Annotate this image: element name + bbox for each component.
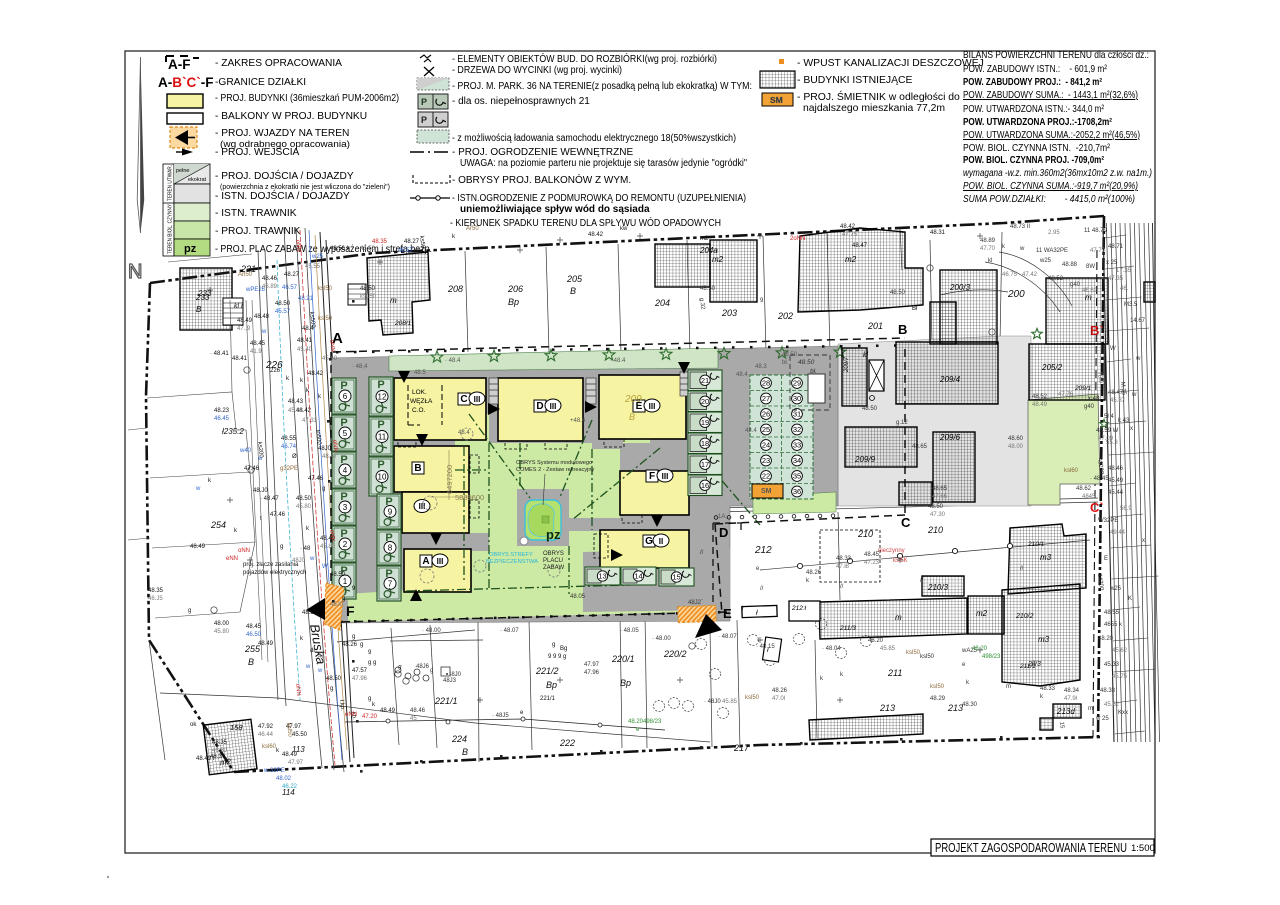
svg-text:G: G	[645, 536, 653, 547]
svg-text:COMES 2 - Zestaw rekreacyjny: COMES 2 - Zestaw rekreacyjny	[516, 467, 595, 473]
svg-text:x 48: x 48	[1088, 396, 1100, 402]
svg-text:W: W	[322, 564, 328, 570]
svg-text:48.49 t: 48.49 t	[196, 756, 215, 762]
svg-text:ksł60: ksł60	[1064, 468, 1079, 474]
svg-text:II: II	[659, 537, 663, 546]
svg-text:m2: m2	[700, 236, 709, 242]
svg-text://: //	[1020, 566, 1024, 572]
svg-text:23: 23	[762, 456, 770, 465]
svg-text:B: B	[462, 747, 468, 757]
svg-text:P: P	[421, 97, 427, 107]
svg-text:221/1: 221/1	[434, 696, 458, 706]
svg-text:48.35: 48.35	[372, 239, 388, 245]
svg-text:48.29: 48.29	[930, 696, 946, 702]
svg-text:nieczynny: nieczynny	[878, 548, 905, 554]
svg-text:8W: 8W	[1086, 264, 1095, 270]
svg-text:5: 5	[343, 429, 348, 438]
svg-text:dr: dr	[310, 648, 315, 654]
svg-text:w25: w25	[1039, 258, 1052, 264]
svg-text:48.33: 48.33	[836, 556, 852, 562]
svg-text:M3.5: M3.5	[1124, 302, 1138, 308]
svg-text:56.9: 56.9	[1120, 506, 1132, 512]
svg-text:PROJEKT ZAGOSPODAROWANIA TERE: PROJEKT ZAGOSPODAROWANIA TERENU	[935, 840, 1127, 855]
svg-text:- KIERUNEK SPADKU TERENU DLA S: - KIERUNEK SPADKU TERENU DLA SPŁYWU WÓD …	[450, 216, 721, 229]
svg-text:ekokrat: ekokrat	[188, 177, 207, 183]
svg-text:g: g	[342, 596, 345, 602]
svg-text:498/23: 498/23	[643, 719, 662, 725]
svg-text:22: 22	[762, 472, 770, 481]
svg-text:48.50: 48.50	[326, 676, 342, 682]
svg-text:4: 4	[343, 466, 348, 475]
svg-text:48J6: 48J6	[416, 664, 430, 670]
svg-text:· 48J5: · 48J5	[492, 713, 509, 719]
svg-text:48.50: 48.50	[700, 286, 716, 292]
svg-text:48.50: 48.50	[798, 359, 815, 366]
svg-text:9 9 9 g: 9 9 9 g	[548, 654, 566, 660]
svg-text:F: F	[649, 471, 655, 482]
svg-text:213: 213	[947, 703, 963, 713]
svg-text:w: w	[195, 486, 201, 492]
svg-text:wPE26: wPE26	[245, 287, 266, 293]
svg-text:47.0ł: 47.0ł	[772, 696, 786, 702]
svg-text:47.,9: 47.,9	[237, 326, 251, 332]
svg-text:48.56 k: 48.56 k	[330, 246, 351, 252]
svg-text:45.57: 45.57	[275, 309, 291, 315]
svg-text:eNN: eNN	[345, 712, 357, 718]
svg-text:47.97: 47.97	[584, 662, 600, 668]
svg-text:24: 24	[762, 441, 770, 450]
svg-text:· 48.07: · 48.07	[718, 634, 737, 640]
svg-text:48.50: 48.50	[928, 504, 944, 510]
svg-text:ksl50: ksl50	[906, 650, 921, 656]
svg-text:47.20: 47.20	[362, 714, 378, 720]
svg-text:48.33: 48.33	[1100, 688, 1116, 694]
svg-text:OBRYS STREFY: OBRYS STREFY	[489, 552, 533, 558]
svg-text:Ar50: Ar50	[466, 226, 479, 232]
svg-text:III: III	[474, 395, 481, 404]
svg-text:· 48.4: · 48.4	[610, 358, 626, 364]
svg-text:- PROJ. M. PARK. 36 NA TERENIE: - PROJ. M. PARK. 36 NA TERENIE(z posadką…	[452, 81, 752, 92]
svg-text:45: 45	[410, 716, 417, 722]
svg-text:47.46: 47.46	[244, 466, 260, 472]
svg-text:47.42: 47.42	[1022, 272, 1038, 278]
svg-text:46.62: 46.62	[1082, 288, 1098, 294]
svg-text:m2: m2	[845, 255, 857, 264]
svg-text:· 48.41: · 48.41	[210, 351, 229, 357]
svg-text:213d: 213d	[1056, 707, 1075, 716]
svg-text:g32PE: g32PE	[280, 466, 298, 472]
svg-text:najdalszego mieszkania 77,2m: najdalszego mieszkania 77,2m	[803, 103, 945, 114]
svg-text:2oNN: 2oNN	[790, 236, 805, 242]
svg-text:Bp: Bp	[546, 680, 557, 690]
svg-text:212:ł: 212:ł	[791, 605, 807, 612]
svg-text:2łl/3: 2łl/3	[1027, 661, 1041, 668]
svg-text:47.46: 47.46	[270, 512, 286, 518]
svg-text:10: 10	[378, 472, 387, 481]
svg-text:(powierzchnia z ekokratki nie: (powierzchnia z ekokratki nie jest wlicz…	[220, 182, 390, 191]
svg-text:48.27: 48.27	[404, 239, 420, 245]
svg-text:w 25: w 25	[1095, 716, 1109, 722]
svg-text:46.: 46.	[1120, 286, 1129, 292]
svg-text:48.88: 48.88	[1062, 262, 1078, 268]
svg-text:D: D	[536, 401, 543, 412]
svg-text:210/1: 210/1	[1027, 541, 1045, 548]
svg-text:48.49: 48.49	[380, 708, 396, 714]
svg-text:21: 21	[701, 376, 709, 385]
svg-text:· 48.00: · 48.00	[652, 636, 671, 642]
svg-text:· 48.05: · 48.05	[620, 628, 639, 634]
svg-text:48.50: 48.50	[275, 301, 291, 307]
svg-text:w: w	[1131, 392, 1137, 398]
svg-text:2.95: 2.95	[1048, 230, 1060, 236]
svg-text:11 WA32PE: 11 WA32PE	[1036, 248, 1068, 254]
svg-text:20: 20	[701, 397, 709, 406]
svg-text:Bł: Bł	[912, 306, 918, 312]
svg-text:uniemożliwiające spływ wód do: uniemożliwiające spływ wód do sąsiada	[460, 204, 650, 215]
svg-text:47.66: 47.66	[932, 494, 948, 500]
svg-text:48.42: 48.42	[588, 232, 604, 238]
svg-text:w: w	[1019, 246, 1025, 252]
svg-text:g: g	[188, 608, 191, 614]
svg-text:· 48: · 48	[300, 546, 311, 552]
svg-text:46.45: 46.45	[214, 416, 230, 422]
svg-text:217: 217	[733, 743, 750, 753]
svg-text:48.4: 48.4	[745, 428, 757, 434]
svg-text:g: g	[430, 668, 433, 674]
svg-text:46.22: 46.22	[282, 784, 298, 790]
svg-text:C`: C`	[1090, 500, 1104, 515]
svg-text:- ISTN. DOJŚCIA / DOJAZDY: - ISTN. DOJŚCIA / DOJAZDY	[215, 189, 350, 202]
svg-text:47.9ł: 47.9ł	[1064, 696, 1078, 702]
svg-text:P: P	[377, 379, 384, 391]
svg-text:III: III	[550, 402, 557, 411]
svg-text:200: 200	[1007, 289, 1025, 300]
svg-text:48.J0: 48.J0	[253, 488, 268, 494]
svg-text:47.31: 47.31	[302, 418, 318, 424]
svg-text:45.75: 45.75	[1112, 674, 1128, 680]
svg-text:212: 212	[754, 545, 772, 556]
svg-text:m: m	[1006, 684, 1011, 690]
svg-text:6497200: 6497200	[445, 465, 454, 494]
svg-text:- dla os. niepełnosprawnych 21: - dla os. niepełnosprawnych 21	[452, 96, 590, 107]
svg-text:8: 8	[388, 543, 393, 552]
svg-text:III: III	[437, 557, 444, 566]
svg-text:46.57: 46.57	[398, 248, 414, 254]
svg-text:47.96: 47.96	[584, 670, 600, 676]
svg-text:17: 17	[701, 460, 709, 469]
svg-text:210: 210	[927, 525, 943, 535]
svg-text:45.62: 45.62	[1112, 648, 1128, 654]
svg-text:x: x	[1142, 538, 1145, 544]
svg-text:w40: w40	[239, 448, 252, 454]
svg-text:kl: kl	[863, 352, 869, 359]
svg-text:pz: pz	[546, 527, 561, 542]
svg-text:33: 33	[793, 441, 801, 450]
svg-text://: //	[700, 550, 704, 556]
svg-text:202: 202	[777, 311, 793, 321]
svg-text:31: 31	[793, 410, 801, 419]
svg-text:48.30: 48.30	[962, 702, 978, 708]
svg-text:47.79: 47.79	[1090, 248, 1106, 254]
svg-text:kl: kl	[988, 258, 992, 264]
svg-text:45.85: 45.85	[722, 699, 738, 705]
svg-text:w25: w25	[1109, 586, 1122, 592]
svg-text:48.47: 48.47	[1108, 390, 1124, 396]
svg-text:48.65: 48.65	[912, 444, 928, 450]
svg-text:48.4: 48.4	[458, 430, 470, 436]
svg-text:- PROJ. TRAWNIK: - PROJ. TRAWNIK	[215, 226, 301, 237]
svg-text:1A.: 1A.	[718, 514, 727, 520]
svg-text:45: 45	[318, 654, 325, 660]
svg-text:48J0: 48J0	[318, 446, 332, 452]
svg-text:w25: w25	[311, 254, 324, 260]
svg-text:4845: 4845	[1082, 494, 1096, 500]
svg-text:45.33: 45.33	[1104, 662, 1120, 668]
svg-text:Bp: Bp	[620, 678, 631, 688]
svg-text:213: 213	[879, 703, 895, 713]
svg-text:· 48.4: · 48.4	[445, 358, 461, 364]
svg-text:46.J5: 46.J5	[148, 596, 163, 602]
svg-text:220/1: 220/1	[611, 654, 635, 664]
svg-text:g: g	[322, 486, 325, 492]
svg-text:13: 13	[598, 572, 606, 581]
svg-text:48.42: 48.42	[840, 224, 856, 230]
svg-text:w: w	[317, 668, 323, 674]
svg-text:209/9: 209/9	[854, 455, 876, 464]
svg-text:48.47: 48.47	[852, 243, 868, 249]
svg-text:208: 208	[447, 284, 463, 294]
svg-text:48.49: 48.49	[258, 641, 274, 647]
svg-text:48.41: 48.41	[297, 338, 313, 344]
svg-text:48.45: 48.45	[864, 552, 880, 558]
svg-text:18: 18	[701, 439, 709, 448]
svg-text:46.44: 46.44	[258, 732, 274, 738]
svg-text:47.96: 47.96	[352, 676, 368, 682]
svg-text:48.50: 48.50	[296, 496, 312, 502]
svg-text:45.50: 45.50	[292, 732, 308, 738]
svg-text:17.35: 17.35	[1116, 268, 1132, 274]
svg-text:B: B	[898, 322, 907, 337]
svg-text:45.40: 45.40	[297, 347, 313, 353]
svg-text:Bg: Bg	[560, 646, 567, 652]
svg-text:pojazdów elektrycznych: pojazdów elektrycznych	[243, 570, 306, 576]
svg-text:211: 211	[887, 668, 902, 678]
svg-text:45.55: 45.55	[305, 264, 321, 270]
svg-text:205: 205	[566, 274, 583, 284]
svg-text:221/1: 221/1	[540, 696, 556, 702]
svg-text:47.23: 47.23	[864, 560, 880, 566]
svg-text:- DRZEWA DO WYCINKI (wg proj.: - DRZEWA DO WYCINKI (wg proj. wycinki)	[452, 65, 622, 76]
svg-text:48.34: 48.34	[1064, 688, 1080, 694]
svg-text:48.50: 48.50	[782, 352, 798, 358]
svg-text:B: B	[629, 412, 635, 422]
svg-text:48.46: 48.46	[262, 276, 278, 282]
svg-text:m: m	[390, 296, 397, 305]
svg-text://: //	[840, 584, 844, 590]
svg-text:48.60: 48.60	[1008, 436, 1024, 442]
svg-text:48.00: 48.00	[1008, 444, 1024, 450]
svg-text:45.44: 45.44	[1108, 490, 1124, 496]
svg-text:47.92: 47.92	[258, 724, 274, 730]
svg-text:D: D	[719, 525, 728, 540]
svg-text:48.35: 48.35	[148, 588, 164, 594]
svg-text:PLACU: PLACU	[543, 558, 563, 564]
svg-text:kl i: kl i	[234, 303, 243, 310]
svg-text:48.45: 48.45	[246, 624, 262, 630]
svg-text:POW. ZABUDOWY SUMA.: - 1443,1: POW. ZABUDOWY SUMA.: - 1443,1 m²(32,6%)	[963, 90, 1138, 101]
svg-text:48.20: 48.20	[628, 719, 644, 725]
svg-text:48.46: 48.46	[1108, 466, 1124, 472]
svg-text:k 43: k 43	[1118, 418, 1130, 424]
svg-text:226: 226	[270, 368, 281, 374]
svg-text:48.3: 48.3	[755, 364, 767, 370]
svg-text:48.21: 48.21	[298, 296, 314, 302]
svg-text:wymagana -w.z. min.360m2(36mx1: wymagana -w.z. min.360m2(36mx10m2 z.w. n…	[963, 168, 1152, 179]
svg-text:TEREN BIOL. CZYNNY: TEREN BIOL. CZYNNY	[168, 204, 174, 254]
svg-text:209/7: 209/7	[844, 356, 850, 373]
svg-text:9: 9	[388, 507, 393, 516]
svg-text:m2: m2	[712, 255, 724, 264]
svg-text:ksl50: ksl50	[920, 654, 935, 660]
svg-text:w: w	[309, 556, 315, 562]
svg-text:- PROJ. ŚMIETNIK w odległości: - PROJ. ŚMIETNIK w odległości do	[797, 90, 960, 103]
svg-text:UWAGA: na poziomie parteru nie: UWAGA: na poziomie parteru nie projektuj…	[460, 158, 747, 169]
svg-text:g.12: g.12	[896, 420, 908, 426]
svg-text:209/6: 209/6	[939, 433, 961, 442]
svg-text:C: C	[901, 515, 911, 530]
svg-text://: //	[760, 586, 764, 592]
svg-text:48.50: 48.50	[330, 572, 346, 578]
svg-text:2: 2	[343, 540, 348, 549]
svg-text:45.85: 45.85	[880, 646, 896, 652]
svg-text:P: P	[377, 419, 384, 431]
svg-text:proj. złącze zasilania: proj. złącze zasilania	[243, 562, 299, 568]
svg-text:48.55: 48.55	[281, 436, 297, 442]
svg-text:48.73 II: 48.73 II	[1010, 224, 1030, 230]
svg-text:55.3: 55.3	[1106, 440, 1118, 446]
svg-text:48.49: 48.49	[237, 318, 253, 324]
svg-text:47.46: 47.46	[308, 476, 324, 482]
svg-text:48.55: 48.55	[1104, 610, 1120, 616]
svg-text:209: 209	[624, 394, 642, 405]
svg-text:OBRYS Systemu modułowego: OBRYS Systemu modułowego	[516, 460, 592, 466]
svg-text:m3: m3	[1038, 635, 1050, 644]
svg-text:F: F	[346, 603, 355, 619]
svg-text:kw: kw	[620, 226, 628, 232]
svg-text:204: 204	[654, 298, 670, 308]
svg-text:48.46: 48.46	[410, 708, 426, 714]
svg-text:w: w	[261, 329, 267, 335]
svg-text:48.35: 48.35	[212, 740, 228, 746]
svg-text:pełne: pełne	[176, 168, 189, 174]
svg-text:5889600: 5889600	[455, 493, 484, 502]
svg-text://: //	[920, 578, 924, 584]
svg-text:E: E	[1104, 556, 1108, 562]
svg-text:47.76: 47.76	[1058, 392, 1074, 398]
svg-text:45.80: 45.80	[320, 544, 336, 550]
svg-text:- PROJ. WJAZDY NA TEREN: - PROJ. WJAZDY NA TEREN	[215, 128, 349, 139]
svg-text:48.52: 48.52	[1032, 394, 1048, 400]
svg-text:A-B`C`-F: A-B`C`-F	[158, 75, 214, 90]
svg-text:w: w	[1135, 356, 1141, 362]
svg-text:45.50: 45.50	[360, 246, 376, 252]
svg-text:- PROJ. OGRODZENIE WEWNĘTRZNE: - PROJ. OGRODZENIE WEWNĘTRZNE	[452, 147, 633, 158]
svg-text:49.44: 49.44	[1110, 530, 1126, 536]
svg-text:211/3: 211/3	[839, 625, 856, 632]
svg-text:220/2: 220/2	[663, 649, 687, 659]
svg-text:ksl50: ksl50	[930, 684, 945, 690]
svg-text:48.71: 48.71	[1108, 244, 1124, 250]
svg-text:A-F: A-F	[168, 57, 191, 72]
svg-text:16: 16	[701, 481, 709, 490]
svg-text:g: g	[352, 634, 355, 640]
svg-text:498/23: 498/23	[982, 654, 1001, 660]
svg-text:bł.: bł.	[782, 360, 789, 366]
svg-text:III: III	[662, 472, 669, 481]
svg-text:35: 35	[793, 472, 801, 481]
svg-text:ZABAW: ZABAW	[543, 565, 564, 571]
svg-text:POW. UTWARDZONA PROJ.:-1708,2m: POW. UTWARDZONA PROJ.:-1708,2m²	[963, 117, 1112, 128]
svg-text:7: 7	[388, 579, 393, 588]
svg-text:Bp: Bp	[508, 297, 519, 307]
svg-text:ksl60: ksl60	[262, 744, 277, 750]
svg-text:46.57: 46.57	[282, 285, 298, 291]
svg-text:B: B	[248, 657, 254, 667]
svg-text:· 48.45: · 48.45	[1090, 476, 1109, 482]
svg-text:m: m	[895, 613, 902, 622]
svg-text:Ø: Ø	[292, 454, 297, 460]
svg-text:· 48J0: · 48J0	[704, 699, 721, 705]
svg-text:224: 224	[451, 734, 467, 744]
svg-text:III: III	[649, 402, 656, 411]
svg-text:W: W	[1110, 346, 1116, 352]
svg-text:46.74: 46.74	[281, 444, 297, 450]
svg-text:45.62: 45.62	[1104, 702, 1120, 708]
svg-text:SM: SM	[770, 95, 783, 105]
svg-text:206: 206	[507, 284, 523, 294]
svg-text:TEREN UTWAR.: TEREN UTWAR.	[168, 165, 174, 201]
svg-text:48.62: 48.62	[1076, 486, 1092, 492]
svg-text:46.75: 46.75	[1002, 272, 1018, 278]
svg-text:W32PE: W32PE	[1098, 518, 1118, 524]
svg-text:x 25: x 25	[1106, 260, 1118, 266]
svg-text:48.4: 48.4	[736, 372, 748, 378]
svg-text:POW. BIOL. CZYNNA PROJ. -709,0: POW. BIOL. CZYNNA PROJ. -709,0m²	[963, 155, 1104, 166]
svg-text:- ISTN. TRAWNIK: - ISTN. TRAWNIK	[215, 208, 297, 219]
svg-text:POW. BIOL. CZYNNA SUMA.:-919,7: POW. BIOL. CZYNNA SUMA.:-919,7 m²(20,9%)	[963, 181, 1138, 192]
svg-text:· 48.04: · 48.04	[822, 646, 841, 652]
svg-text:- ZAKRES OPRACOWANIA: - ZAKRES OPRACOWANIA	[215, 58, 342, 69]
svg-text:48J2`: 48J2`	[688, 600, 703, 606]
svg-text:47.30: 47.30	[930, 512, 946, 518]
svg-text:B: B	[414, 463, 421, 474]
svg-text:oNN: oNN	[238, 548, 250, 554]
svg-text:48J0: 48J0	[330, 602, 344, 608]
svg-text:C.O.: C.O.	[412, 407, 426, 414]
svg-text:209/4: 209/4	[939, 375, 961, 384]
svg-text:46.50: 46.50	[212, 748, 228, 754]
svg-text:E: E	[723, 606, 732, 621]
svg-text:48.5: 48.5	[414, 370, 426, 376]
svg-text:48.20: 48.20	[868, 638, 884, 644]
svg-text:5ł 4: 5ł 4	[1104, 414, 1114, 420]
svg-text:48.02: 48.02	[276, 776, 292, 782]
svg-text:48.26: 48.26	[806, 570, 822, 576]
svg-text:48.47: 48.47	[322, 454, 338, 460]
svg-text:- PROJ. WEJŚCIA: - PROJ. WEJŚCIA	[215, 145, 300, 158]
svg-text:· 48.00: · 48.00	[422, 628, 441, 634]
svg-text:· 48.47: · 48.47	[260, 496, 279, 502]
